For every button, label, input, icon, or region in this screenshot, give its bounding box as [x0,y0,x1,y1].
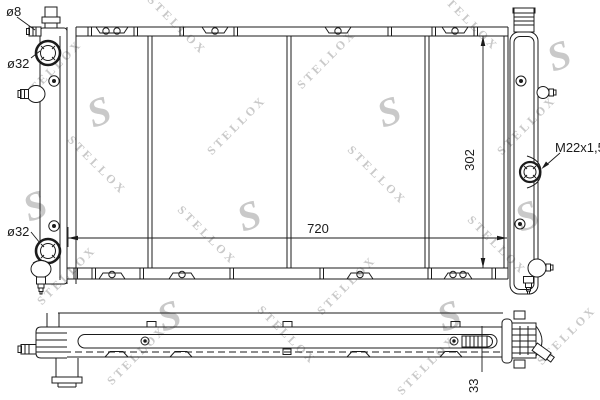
top-mounting-tabs [96,27,468,34]
leader-m22 [542,153,561,169]
label-inlet-diameter: ø8 [6,4,21,19]
core-dividers [148,36,429,268]
bolt-hole [49,76,59,86]
label-core-height: 302 [462,149,477,171]
label-thread-spec: M22x1,5 [555,140,600,155]
bolt-hole [49,221,59,231]
label-core-depth: 33 [466,379,481,393]
left-inlet-fitting-side [18,313,82,387]
upper-32-port [36,41,60,65]
top-lugs [147,322,460,355]
top-hose-stub [42,7,60,28]
bottom-rail-ticks [74,268,496,279]
left-tank [18,7,76,294]
right-outlet-nipple [537,87,556,99]
top-rail-ticks [88,27,478,36]
bottom-view [18,311,555,387]
left-side-fitting [18,86,45,103]
rivet-hole [141,337,149,345]
bottom-mounting-tabs [99,271,472,279]
right-tank [510,8,556,294]
inlet-8-nipple [27,27,42,36]
core [67,27,508,279]
radiator-technical-drawing: ø8 ø32 ø32 720 302 M22x1,5 33 [0,0,600,400]
label-upper-port-diameter: ø32 [7,56,29,71]
right-outlet-fitting-side [502,311,555,368]
lower-drain-fitting [31,261,51,295]
label-lower-port-diameter: ø32 [7,224,29,239]
threaded-plug-side [462,336,493,347]
leader-o32-lower [31,232,40,243]
label-core-width: 720 [307,221,329,236]
bolt-hole [515,219,525,229]
dim-302 [481,36,486,268]
parts-catalog-drawing: STELLOXSTELLOXSTELLOXSTELLOXSTELLOXSTELL… [0,0,600,400]
bolt-hole [516,76,526,86]
filler-neck [513,8,535,32]
dimension-lines [17,17,560,372]
rivet-hole [450,337,458,345]
right-drain-fitting [524,259,554,294]
